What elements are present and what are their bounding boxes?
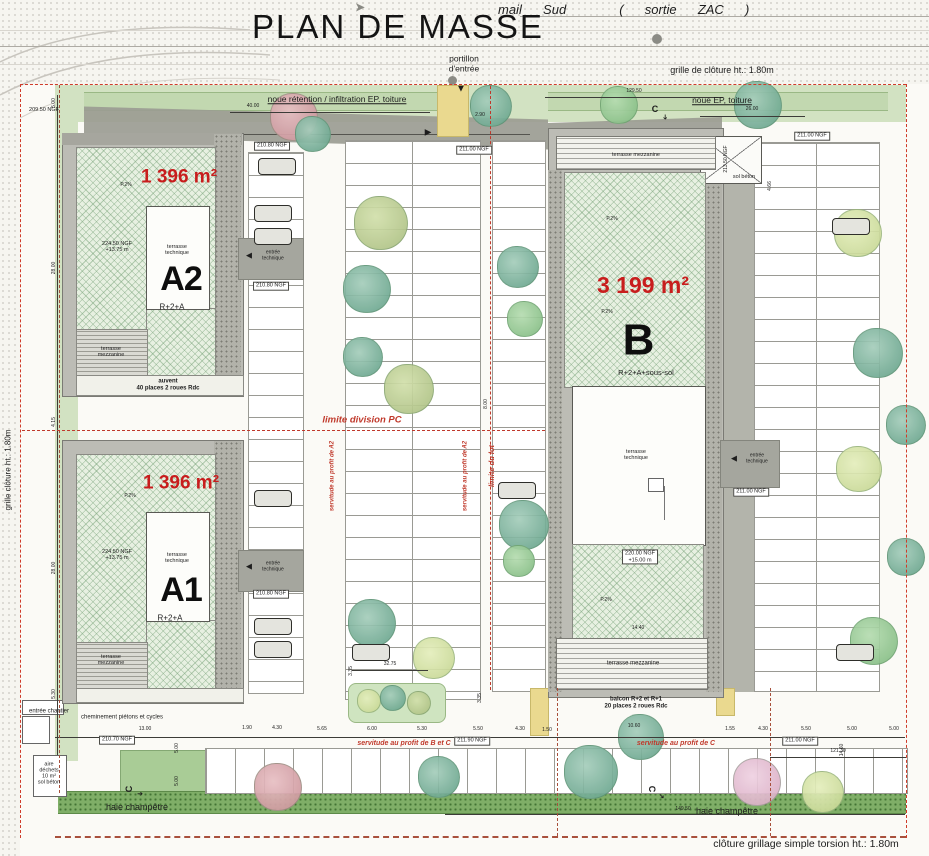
entree-technique-b-arrow-icon: ◄ xyxy=(729,453,739,464)
plan-label: P.2% xyxy=(601,310,612,316)
utility-box xyxy=(22,716,50,744)
tree xyxy=(497,246,539,288)
plan-label: entrée technique xyxy=(262,561,284,572)
tree xyxy=(564,745,618,799)
tree xyxy=(503,545,535,577)
plan-label: 28.00 xyxy=(52,262,58,275)
plan-label: R+2+A+sous-sol xyxy=(618,369,674,377)
limite-du-lot-line xyxy=(490,86,491,690)
tree xyxy=(802,771,844,813)
building-a1-strip xyxy=(76,688,244,703)
haie-champetre-left: haie champêtre xyxy=(106,802,168,812)
tree xyxy=(254,763,302,811)
plan-label: 5.00 xyxy=(889,727,899,733)
plan-label: 6.00 xyxy=(367,727,377,733)
plan-label: 5.00 xyxy=(847,727,857,733)
plan-label: 4.30 xyxy=(515,727,525,733)
plan-label: 4.66 xyxy=(768,181,774,191)
plan-label: 5.00 xyxy=(175,776,181,786)
car xyxy=(254,228,292,245)
plan-label: 5.50 xyxy=(801,727,811,733)
plan-label: 210.80 NGF xyxy=(253,590,289,599)
tree xyxy=(507,301,543,337)
plan-label: 213.50 NGF xyxy=(724,145,730,172)
building-a1-label: A1 xyxy=(160,571,201,609)
servitude-b-c: servitude au profit de B et C xyxy=(357,740,450,748)
plan-label: P.2% xyxy=(606,217,617,223)
plan-label: 28.00 xyxy=(52,562,58,575)
plan-label: 210.70 NGF xyxy=(99,736,135,745)
servitude-a2-left: servitude au profit de A2 xyxy=(330,441,337,511)
plan-label: 2.90 xyxy=(475,113,485,119)
plan-label: 211.00 NGF xyxy=(456,146,492,155)
plan-label: 40.00 xyxy=(247,104,260,110)
page-subtitle: mail Sud ( sortie ZAC ) xyxy=(498,2,749,17)
auvent-label: auvent 40 places 2 roues Rdc xyxy=(136,378,199,391)
area-a2: 1 396 m² xyxy=(141,166,217,187)
car xyxy=(254,618,292,635)
plan-label: 32.75 xyxy=(384,662,397,668)
car xyxy=(254,490,292,507)
fence-left-inner xyxy=(59,85,60,793)
plan-label: entrée technique xyxy=(262,250,284,261)
entree-technique-a1-arrow-icon: ◄ xyxy=(244,561,254,572)
building-b-label: B xyxy=(623,315,654,364)
driveway-b-right xyxy=(722,140,754,692)
plan-label: 1.50 xyxy=(542,728,552,734)
car xyxy=(258,158,296,175)
car xyxy=(254,205,292,222)
tree xyxy=(354,196,408,250)
c-marker-bottom-right: C xyxy=(647,786,657,793)
plan-label: 5.65 xyxy=(317,727,327,733)
car xyxy=(836,644,874,661)
grille-cloture-top-label: grille de clôture ht.: 1.80m xyxy=(670,65,774,75)
car xyxy=(832,218,870,235)
hedge-bottom xyxy=(58,791,906,814)
plan-label: 8.00 xyxy=(484,399,490,409)
tree xyxy=(470,85,512,127)
noue-ep-label: noue EP, toiture xyxy=(692,96,752,106)
parking-row xyxy=(412,140,481,700)
plan-label: terrasse technique xyxy=(165,244,189,256)
drive-arrow-icon: ▶ xyxy=(425,129,431,138)
noue-retention-label: noue rétention / infiltration EP. toitur… xyxy=(268,95,407,105)
plan-label: 10.60 xyxy=(628,724,641,730)
building-a1-green-roof-low xyxy=(146,620,216,694)
plan-label: 1.90 xyxy=(242,726,252,732)
plan-label: terrasse mezzanine xyxy=(98,346,125,358)
grille-cloture-left-label: grille clôture ht.: 1.80m xyxy=(5,430,14,511)
plan-label: ➔ xyxy=(660,114,668,120)
plan-label: entrée technique xyxy=(746,453,768,464)
plan-label: 211.90 NGF xyxy=(454,737,490,746)
c-marker-top: C xyxy=(652,104,659,114)
plan-label: 1.55 xyxy=(725,727,735,733)
plan-label: 13.00 xyxy=(139,727,152,733)
tree xyxy=(348,599,396,647)
aire-dechets-label: aire déchets 10 m² sol béton xyxy=(38,762,60,787)
plan-label: 3.35 xyxy=(478,693,484,703)
plan-label: 210.80 NGF xyxy=(253,282,289,291)
boundary-right xyxy=(906,84,907,838)
dimension-line xyxy=(230,112,430,113)
tree xyxy=(836,446,882,492)
plan-label: terrasse mezzanine xyxy=(612,152,660,158)
plan-label: 4.30 xyxy=(758,727,768,733)
plan-label: terrasse technique xyxy=(165,552,189,564)
building-a2-gravel xyxy=(214,134,241,394)
building-b-tech-box xyxy=(648,478,664,492)
plan-label: 4.15 xyxy=(52,417,58,427)
plan-label: 3.35 xyxy=(349,666,355,676)
building-b-gravel-right xyxy=(706,170,722,692)
portillon-label: portillon d'entrée xyxy=(449,54,479,73)
car xyxy=(498,482,536,499)
area-a1: 1 396 m² xyxy=(143,472,219,493)
plan-label: 210.80 NGF xyxy=(254,142,290,151)
tree xyxy=(343,337,383,377)
haie-champetre-right: haie champêtre xyxy=(696,806,758,816)
dimension-line xyxy=(352,670,428,671)
dimension-line xyxy=(770,757,906,758)
tree xyxy=(384,364,434,414)
boundary-left xyxy=(20,84,21,838)
plan-label: sol béton xyxy=(733,174,755,180)
plan-label: P.2% xyxy=(120,183,131,189)
tree xyxy=(853,328,903,378)
plan-label: 14.60 xyxy=(840,744,846,757)
limite-du-lot: limite du lot xyxy=(488,445,496,487)
plan-label: 5.00 xyxy=(175,743,181,753)
plan-label: terrasse mezzanine xyxy=(607,661,659,668)
plan-label: R+2+A xyxy=(158,615,183,624)
parking-row xyxy=(492,140,546,692)
plan-label: terrasse technique xyxy=(624,449,648,461)
plan-label: ➔ xyxy=(137,791,143,799)
servitude-a2-right: servitude au profit de A2 xyxy=(463,441,470,511)
balcon-label: balcon R+2 et R+1 20 places 2 roues Rdc xyxy=(604,696,667,709)
plan-label: 26.00 xyxy=(746,107,759,113)
tree xyxy=(343,265,391,313)
plan-label: 5.30 xyxy=(417,727,427,733)
dimension-line xyxy=(700,116,805,117)
cheminement-label: cheminement piétons et cycles xyxy=(81,715,163,722)
title-underline xyxy=(0,46,929,47)
limite-division-pc: limite division PC xyxy=(322,416,401,427)
tree xyxy=(733,758,781,806)
plan-label: 5.50 xyxy=(473,727,483,733)
fence-bottom-right xyxy=(770,688,771,836)
c-marker-bottom-left: C xyxy=(124,786,134,793)
tree xyxy=(295,116,331,152)
plan-label: 5.30 xyxy=(52,689,58,699)
plan-label: 224.50 NGF +13.75 m xyxy=(102,241,132,253)
plan-label: 149.50 xyxy=(675,807,690,813)
building-b-gravel-left xyxy=(548,170,562,692)
site-plan: PLAN DE MASSE mail Sud ( sortie ZAC ) xyxy=(0,0,929,856)
tree xyxy=(407,691,431,715)
building-b-tech-line xyxy=(664,486,665,520)
plan-label: 5.00 xyxy=(52,98,58,108)
tree xyxy=(499,500,549,550)
plan-label: 224.50 NGF +13.75 m xyxy=(102,549,132,561)
plan-label: R+2+A xyxy=(160,304,185,313)
tree xyxy=(418,756,460,798)
road-dot xyxy=(652,34,662,44)
dimension-line xyxy=(445,814,905,815)
area-b: 3 199 m² xyxy=(597,273,689,299)
plan-label: terrasse mezzanine xyxy=(98,654,125,666)
parking-row xyxy=(754,142,818,692)
plan-label: 129.50 xyxy=(626,89,641,95)
plan-label: 4.30 xyxy=(272,726,282,732)
car xyxy=(352,644,390,661)
plan-label: 220.00 NGF +15.00 m xyxy=(622,549,658,564)
building-b-tech-terrace xyxy=(572,386,706,546)
cloture-grillage-label: clôture grillage simple torsion ht.: 1.8… xyxy=(713,839,899,851)
entree-chantier-label: entrée chantier xyxy=(29,709,69,716)
tree xyxy=(380,685,406,711)
plan-label: 211.00 NGF xyxy=(733,488,769,497)
building-a2-label: A2 xyxy=(160,260,201,298)
plan-label: P.2% xyxy=(600,598,611,604)
servitude-c: servitude au profit de C xyxy=(637,740,715,748)
tree xyxy=(413,637,455,679)
plan-label: 14.40 xyxy=(632,626,645,632)
car xyxy=(254,641,292,658)
tree xyxy=(357,689,381,713)
portillon-arrow-icon: ▼ xyxy=(456,83,466,94)
plan-label: P.2% xyxy=(124,494,135,500)
limite-division-pc-line xyxy=(22,430,545,431)
entree-technique-a2-arrow-icon: ◄ xyxy=(244,250,254,261)
plan-label: 211.00 NGF xyxy=(794,132,830,141)
plan-label: 211.00 NGF xyxy=(782,737,818,746)
fence-bottom-mid xyxy=(557,688,558,836)
